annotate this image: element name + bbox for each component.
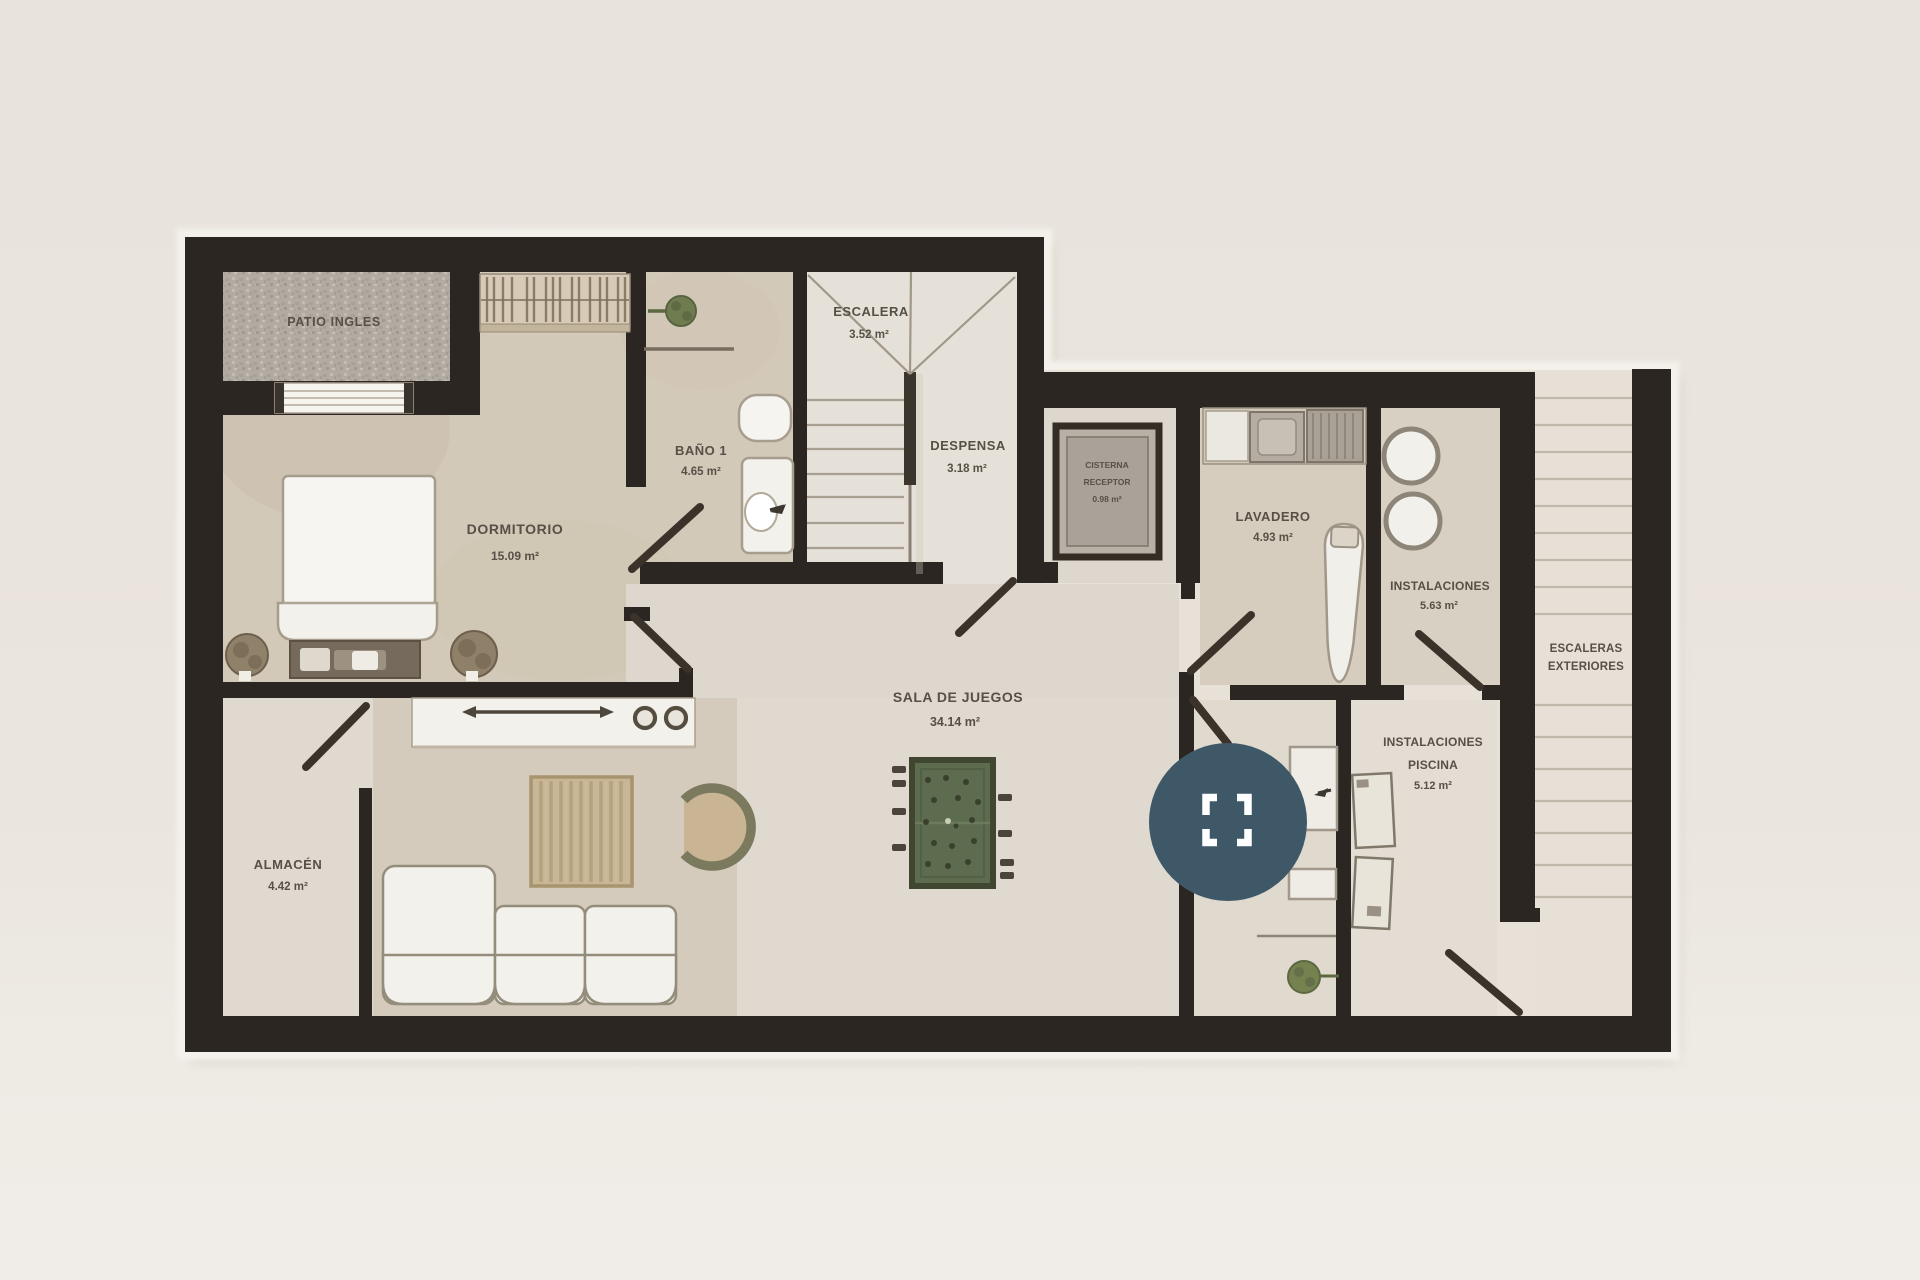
svg-text:LAVADERO: LAVADERO (1235, 509, 1310, 524)
svg-text:DORMITORIO: DORMITORIO (467, 521, 564, 537)
svg-text:34.14 m²: 34.14 m² (930, 715, 980, 729)
svg-text:INSTALACIONES: INSTALACIONES (1383, 735, 1483, 749)
svg-text:5.12 m²: 5.12 m² (1414, 780, 1452, 792)
svg-text:15.09 m²: 15.09 m² (491, 549, 539, 563)
svg-text:4.42 m²: 4.42 m² (268, 881, 308, 893)
svg-text:ESCALERAS: ESCALERAS (1550, 643, 1623, 655)
svg-text:4.93 m²: 4.93 m² (1253, 532, 1293, 544)
svg-text:SALA DE JUEGOS: SALA DE JUEGOS (893, 689, 1023, 705)
svg-text:ESCALERA: ESCALERA (833, 304, 909, 319)
svg-text:PATIO INGLES: PATIO INGLES (287, 315, 381, 329)
svg-text:INSTALACIONES: INSTALACIONES (1390, 579, 1490, 593)
svg-text:PISCINA: PISCINA (1408, 758, 1458, 772)
svg-text:4.65 m²: 4.65 m² (681, 466, 721, 478)
svg-text:EXTERIORES: EXTERIORES (1548, 661, 1624, 673)
svg-text:BAÑO 1: BAÑO 1 (675, 443, 727, 458)
svg-text:CISTERNA: CISTERNA (1085, 460, 1128, 470)
svg-text:DESPENSA: DESPENSA (930, 438, 1006, 453)
svg-text:3.18 m²: 3.18 m² (947, 463, 987, 475)
svg-text:5.63 m²: 5.63 m² (1420, 600, 1458, 612)
svg-text:3.52 m²: 3.52 m² (849, 329, 889, 341)
svg-text:0.98 m²: 0.98 m² (1092, 494, 1121, 504)
svg-text:ALMACÉN: ALMACÉN (254, 857, 323, 872)
svg-text:RECEPTOR: RECEPTOR (1083, 477, 1130, 487)
